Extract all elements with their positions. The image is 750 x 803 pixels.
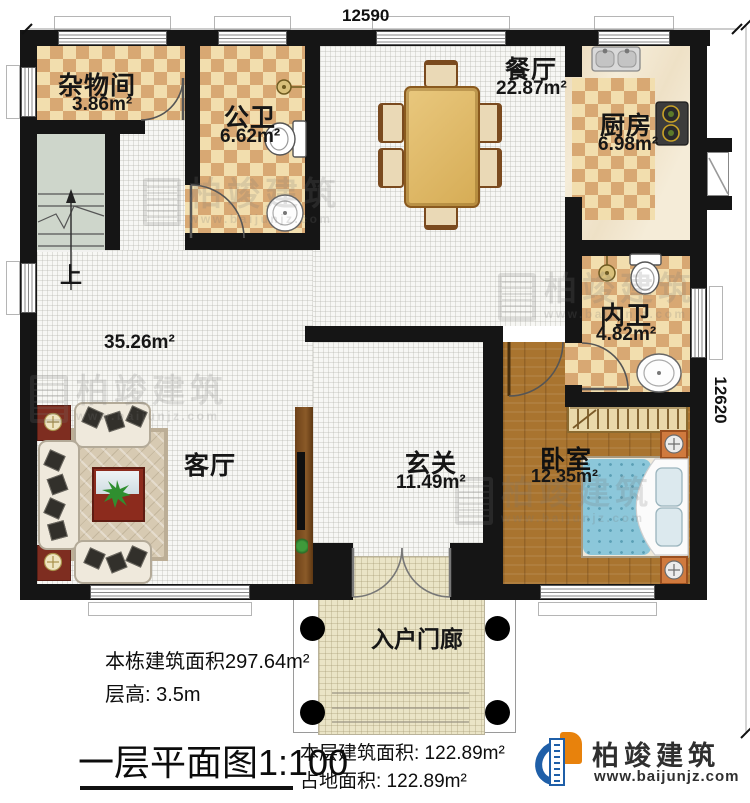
stairs-up-label: 上 [60, 258, 82, 290]
watermark: 柏竣建筑 www.baijunjz.com [498, 272, 696, 321]
floor-plan: 柏竣建筑 www.baijunjz.com 柏竣建筑 www.baijunjz.… [0, 0, 750, 803]
room-area-storage: 3.86m² [72, 94, 132, 116]
porch-steps [332, 693, 469, 722]
stairs-up-arrow-icon [66, 189, 76, 203]
room-area-foyer: 11.49m² [396, 472, 466, 494]
brand-logo-icon [536, 736, 582, 788]
watermark-logo-icon [498, 273, 536, 321]
room-area-living: 35.26m² [104, 332, 175, 354]
room-label-living: 客厅 [184, 446, 236, 482]
watermark-logo-icon [30, 375, 68, 423]
room-area-bedroom: 12.35m² [531, 466, 598, 487]
watermark-logo-icon [143, 178, 181, 226]
room-label-porch: 入户门廊 [371, 620, 463, 654]
building-total-area: 本栋建筑面积297.64m² [105, 645, 310, 674]
room-area-dining: 22.87m² [496, 78, 567, 100]
brand-logo: 柏竣建筑 www.baijunjz.com [536, 728, 736, 794]
plant-icon [102, 480, 131, 508]
room-area-ensuite: 4.82m² [596, 324, 656, 346]
floor-area: 本层建筑面积: 122.89m² [300, 738, 505, 765]
watermark: 柏竣建筑 www.baijunjz.com [30, 374, 228, 423]
floor-height: 层高: 3.5m [105, 678, 201, 707]
room-area-kitchen: 6.98m² [598, 134, 658, 156]
plan-title-underline [80, 786, 293, 790]
brand-url: www.baijunjz.com [594, 768, 739, 785]
wardrobe-hangers [570, 408, 686, 429]
watermark: 柏竣建筑 www.baijunjz.com [143, 177, 341, 226]
footprint-area: 占地面积: 122.89m² [300, 766, 467, 793]
room-area-public-bath: 6.62m² [220, 126, 280, 148]
dimension-top: 12590 [342, 6, 389, 26]
dimension-right: 12620 [710, 372, 730, 428]
